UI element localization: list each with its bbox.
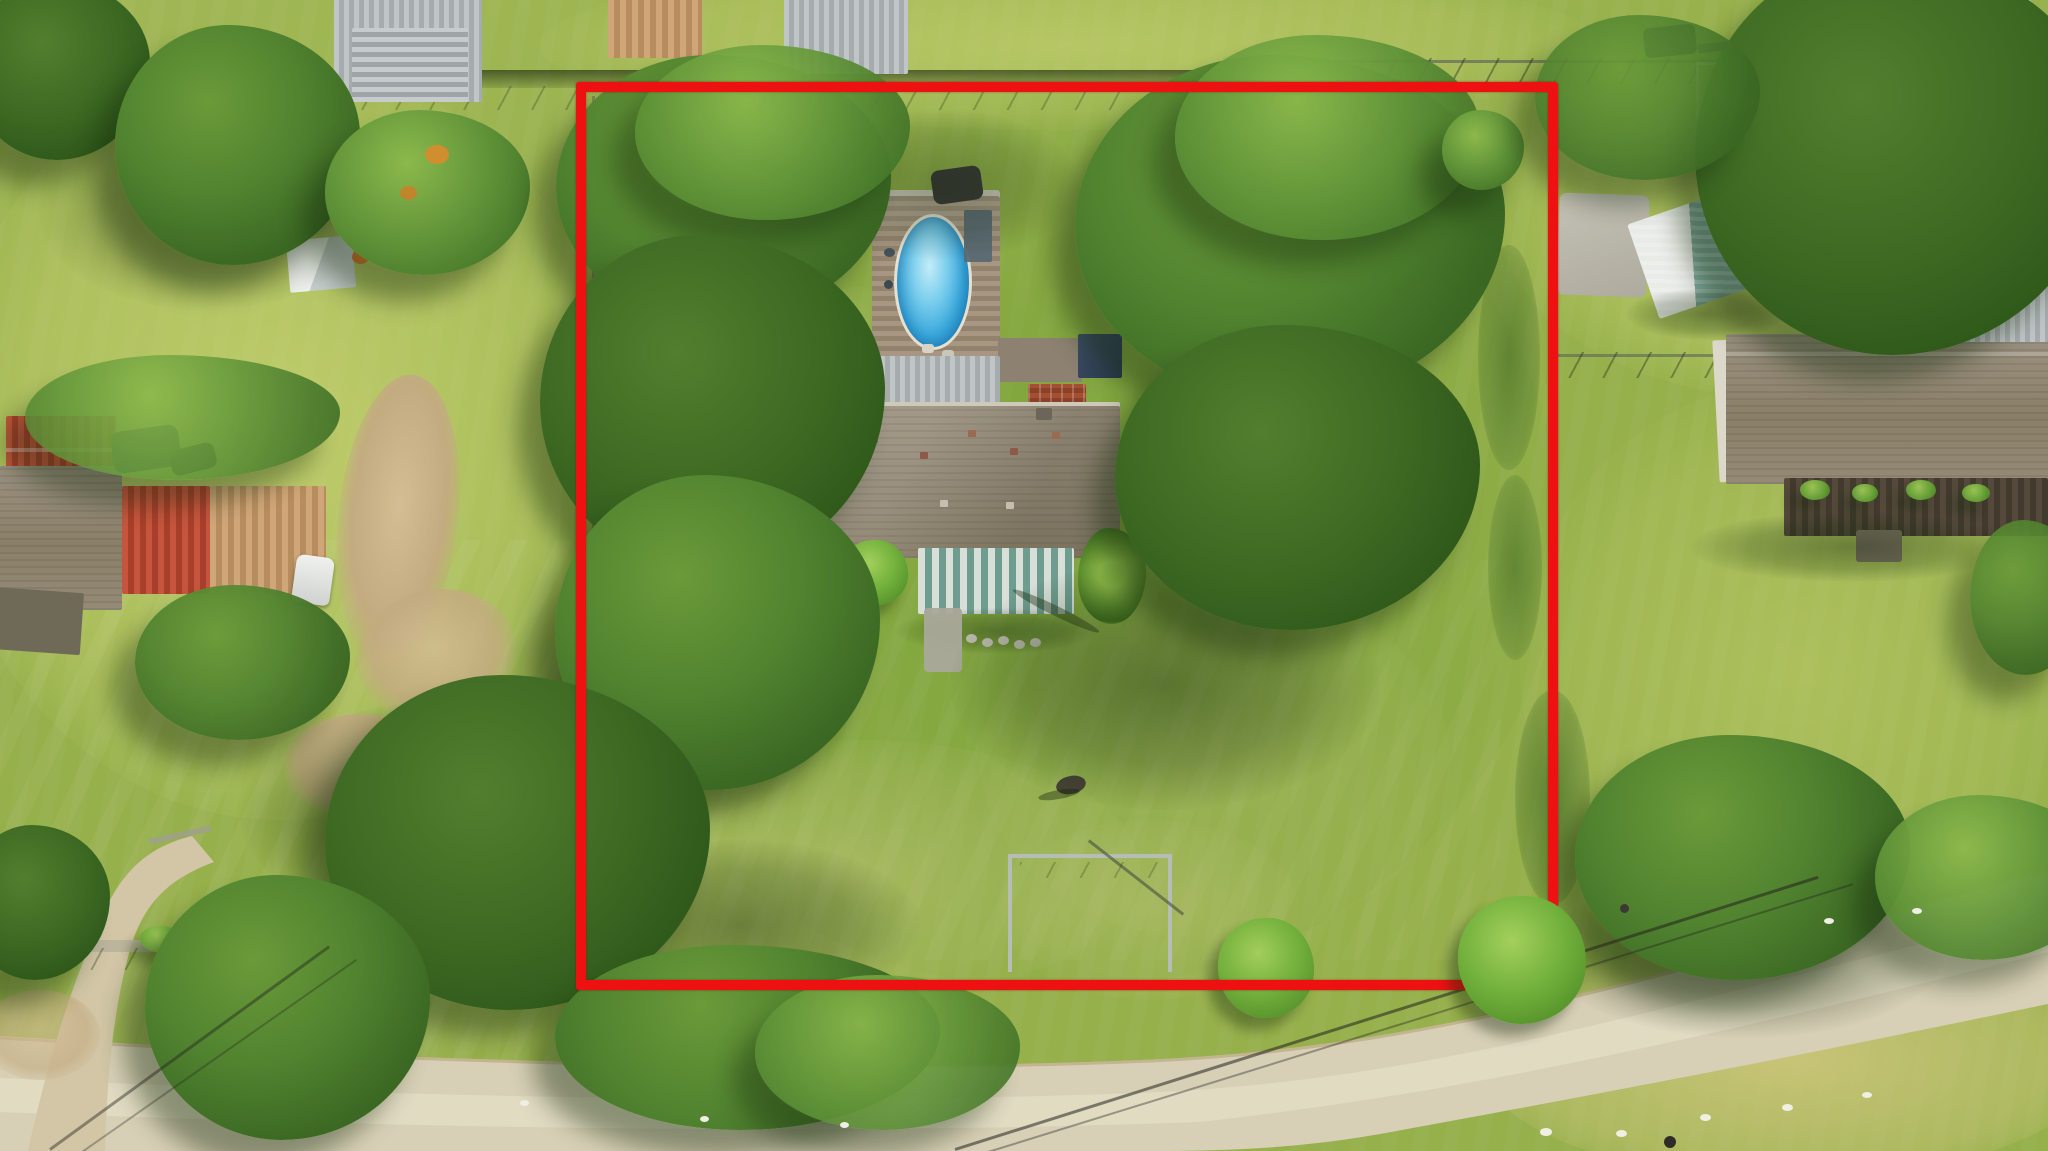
flowering-tree [325,110,530,275]
road-debris [700,1116,709,1122]
dirt-road-shoulder [0,990,100,1080]
tire [1664,1136,1676,1148]
right-house-roof [1726,334,2048,484]
tree-row [25,355,340,480]
orange-blossom [400,186,417,200]
feature-layer [0,0,2048,1151]
barn-top-roof [352,28,468,102]
left-house-lower-roof [0,587,84,655]
carport-red-section [122,486,210,594]
mailbox-speck [1540,1128,1552,1136]
mailbox-speck [1616,1130,1627,1137]
mailbox-speck [1782,1104,1793,1111]
mailbox-speck [1862,1092,1872,1098]
deck-plant [1800,480,1830,500]
property-boundary [576,82,1558,990]
mailbox-speck [1912,908,1922,914]
aerial-property-photo [0,0,2048,1151]
driveway-gate [148,825,212,844]
deck-plant [1852,484,1878,502]
oak-tree [135,585,350,740]
mailbox-speck [1824,918,1834,924]
corner-bush [1458,896,1586,1024]
road-debris [840,1122,849,1128]
road-debris [520,1100,529,1106]
deck-plant [1906,480,1936,500]
right-house-shadow [1690,512,2010,582]
utility-pole [1620,904,1629,913]
tan-carport-top [608,0,702,58]
roadside-tree [755,975,1020,1130]
mailbox-speck [1700,1114,1711,1121]
deck-plant [1962,484,1990,502]
orange-blossom [425,145,449,164]
